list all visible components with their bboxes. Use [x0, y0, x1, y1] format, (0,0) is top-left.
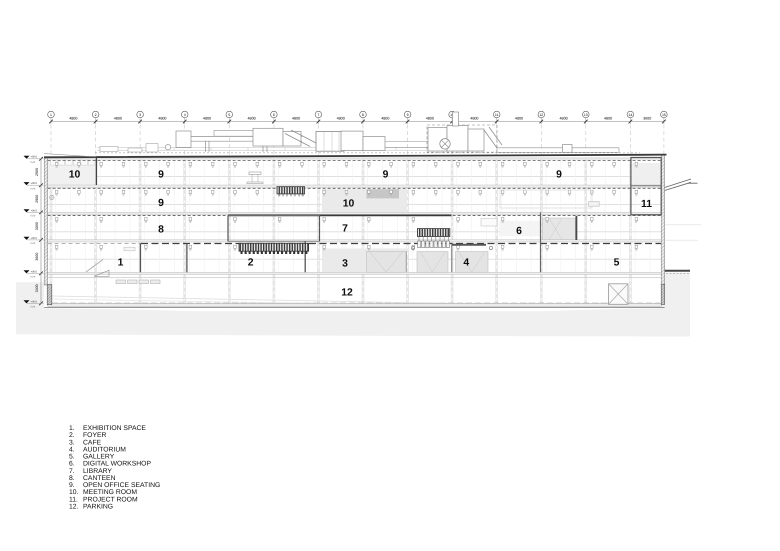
- svg-text:0.00: 0.00: [31, 215, 36, 218]
- svg-text:7: 7: [342, 223, 348, 234]
- svg-text:0.00: 0.00: [31, 306, 36, 309]
- svg-text:4800: 4800: [292, 117, 300, 121]
- svg-text:14: 14: [628, 113, 632, 117]
- svg-text:FOYER: FOYER: [83, 432, 107, 439]
- svg-text:4800: 4800: [158, 117, 166, 121]
- svg-text:12: 12: [539, 113, 543, 117]
- svg-text:3: 3: [342, 259, 348, 270]
- svg-text:9: 9: [383, 170, 389, 181]
- svg-text:4800: 4800: [559, 117, 567, 121]
- svg-text:2.: 2.: [69, 432, 75, 439]
- svg-text:GALLERY: GALLERY: [83, 454, 115, 461]
- svg-text:7.: 7.: [69, 468, 75, 475]
- svg-text:1.: 1.: [69, 425, 75, 432]
- svg-text:3: 3: [139, 113, 141, 117]
- svg-text:4800: 4800: [426, 117, 434, 121]
- svg-text:5: 5: [614, 258, 620, 269]
- svg-text:5: 5: [228, 113, 230, 117]
- svg-text:3300: 3300: [35, 284, 39, 292]
- svg-text:CANTEEN: CANTEEN: [83, 475, 116, 482]
- svg-text:9: 9: [407, 113, 409, 117]
- svg-text:AUDITORIUM: AUDITORIUM: [83, 447, 126, 454]
- svg-text:2: 2: [248, 258, 254, 269]
- svg-text:10: 10: [69, 170, 81, 181]
- svg-text:8: 8: [158, 225, 164, 236]
- svg-text:4800: 4800: [337, 117, 345, 121]
- svg-text:6: 6: [273, 113, 275, 117]
- svg-text:6: 6: [516, 226, 522, 237]
- svg-text:2900: 2900: [35, 195, 39, 203]
- svg-text:8: 8: [362, 113, 364, 117]
- svg-text:10.: 10.: [69, 489, 79, 496]
- svg-text:MEETING ROOM: MEETING ROOM: [83, 489, 137, 496]
- svg-text:DIGITAL WORKSHOP: DIGITAL WORKSHOP: [83, 461, 151, 468]
- svg-text:0.00: 0.00: [31, 161, 36, 164]
- svg-text:7: 7: [317, 113, 319, 117]
- svg-text:9: 9: [556, 170, 562, 181]
- svg-text:5.: 5.: [69, 454, 75, 461]
- svg-text:4: 4: [463, 257, 469, 268]
- svg-text:11: 11: [495, 113, 499, 117]
- svg-text:15: 15: [662, 113, 666, 117]
- svg-text:4800: 4800: [381, 117, 389, 121]
- svg-text:9: 9: [158, 198, 164, 209]
- svg-text:3000: 3000: [35, 222, 39, 230]
- svg-text:3600: 3600: [643, 117, 651, 121]
- svg-text:3600: 3600: [35, 253, 39, 261]
- svg-text:CAFE: CAFE: [83, 439, 102, 446]
- svg-text:2: 2: [95, 113, 97, 117]
- svg-text:PARKING: PARKING: [83, 503, 113, 510]
- svg-text:12.: 12.: [69, 503, 79, 510]
- svg-text:4800: 4800: [114, 117, 122, 121]
- svg-text:6.: 6.: [69, 461, 75, 468]
- svg-text:4800: 4800: [69, 117, 77, 121]
- svg-text:4800: 4800: [515, 117, 523, 121]
- svg-text:11.: 11.: [69, 496, 78, 503]
- svg-text:+00.0: +00.0: [31, 156, 38, 159]
- svg-text:9.: 9.: [69, 482, 75, 489]
- svg-text:1: 1: [50, 113, 52, 117]
- svg-text:11: 11: [641, 199, 652, 210]
- svg-text:+00.0: +00.0: [31, 270, 38, 273]
- svg-text:+00.0: +00.0: [31, 182, 38, 185]
- svg-text:2900: 2900: [35, 168, 39, 176]
- svg-text:+00.0: +00.0: [31, 300, 38, 303]
- svg-text:0.00: 0.00: [31, 242, 36, 245]
- svg-text:EXHIBITION SPACE: EXHIBITION SPACE: [83, 425, 146, 432]
- svg-text:PROJECT ROOM: PROJECT ROOM: [83, 496, 138, 503]
- svg-text:3.: 3.: [69, 439, 75, 446]
- svg-text:4800: 4800: [470, 117, 478, 121]
- svg-text:4800: 4800: [247, 117, 255, 121]
- svg-text:1: 1: [118, 258, 124, 269]
- svg-text:4800: 4800: [604, 117, 612, 121]
- svg-text:4: 4: [184, 113, 186, 117]
- svg-text:12: 12: [341, 288, 353, 299]
- svg-text:+00.0: +00.0: [31, 209, 38, 212]
- svg-text:0.00: 0.00: [31, 276, 36, 279]
- svg-text:9: 9: [158, 170, 164, 181]
- svg-text:13: 13: [584, 113, 588, 117]
- svg-text:0.00: 0.00: [31, 188, 36, 191]
- svg-text:+00.0: +00.0: [31, 237, 38, 240]
- svg-text:10: 10: [343, 198, 355, 209]
- svg-text:LIBRARY: LIBRARY: [83, 468, 112, 475]
- svg-text:4800: 4800: [203, 117, 211, 121]
- svg-text:OPEN OFFICE SEATING: OPEN OFFICE SEATING: [83, 482, 160, 489]
- svg-text:4.: 4.: [69, 447, 75, 454]
- svg-text:8.: 8.: [69, 475, 75, 482]
